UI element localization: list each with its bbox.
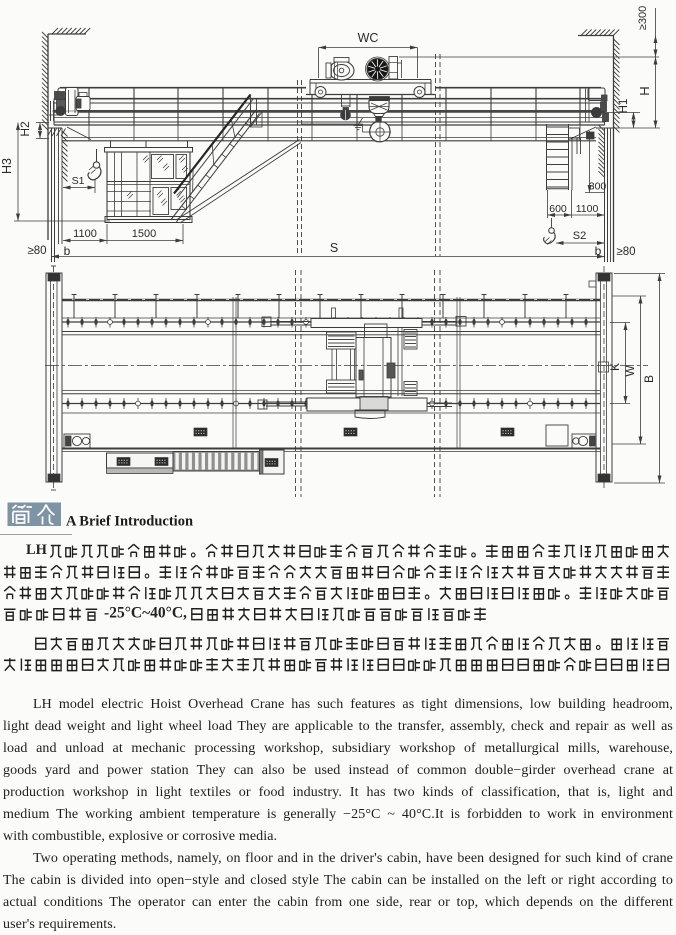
svg-text:b: b bbox=[595, 244, 602, 258]
svg-text:H3: H3 bbox=[0, 158, 14, 174]
svg-text:A Brief Introduction: A Brief Introduction bbox=[66, 514, 193, 530]
svg-text:1500: 1500 bbox=[132, 228, 156, 240]
svg-text:LH: LH bbox=[26, 542, 48, 558]
svg-text:1100: 1100 bbox=[576, 203, 599, 215]
svg-text:≥80: ≥80 bbox=[27, 245, 46, 257]
svg-text:W: W bbox=[623, 365, 637, 377]
svg-text:b: b bbox=[64, 244, 71, 258]
svg-text:S2: S2 bbox=[573, 230, 586, 242]
svg-text:600: 600 bbox=[549, 203, 567, 215]
svg-text:-25°C~40°C,: -25°C~40°C, bbox=[104, 605, 187, 622]
svg-text:≥80: ≥80 bbox=[616, 246, 635, 258]
svg-text:WC: WC bbox=[358, 31, 379, 45]
svg-text:H1: H1 bbox=[618, 99, 630, 114]
svg-text:K: K bbox=[608, 363, 622, 371]
svg-text:≥300: ≥300 bbox=[637, 6, 649, 30]
svg-text:B: B bbox=[642, 375, 656, 383]
svg-text:H2: H2 bbox=[18, 121, 32, 137]
svg-text:300: 300 bbox=[589, 181, 607, 193]
svg-text:1100: 1100 bbox=[73, 228, 97, 240]
svg-text:H: H bbox=[637, 86, 652, 95]
svg-text:S: S bbox=[330, 241, 338, 255]
svg-text:S1: S1 bbox=[72, 175, 85, 187]
